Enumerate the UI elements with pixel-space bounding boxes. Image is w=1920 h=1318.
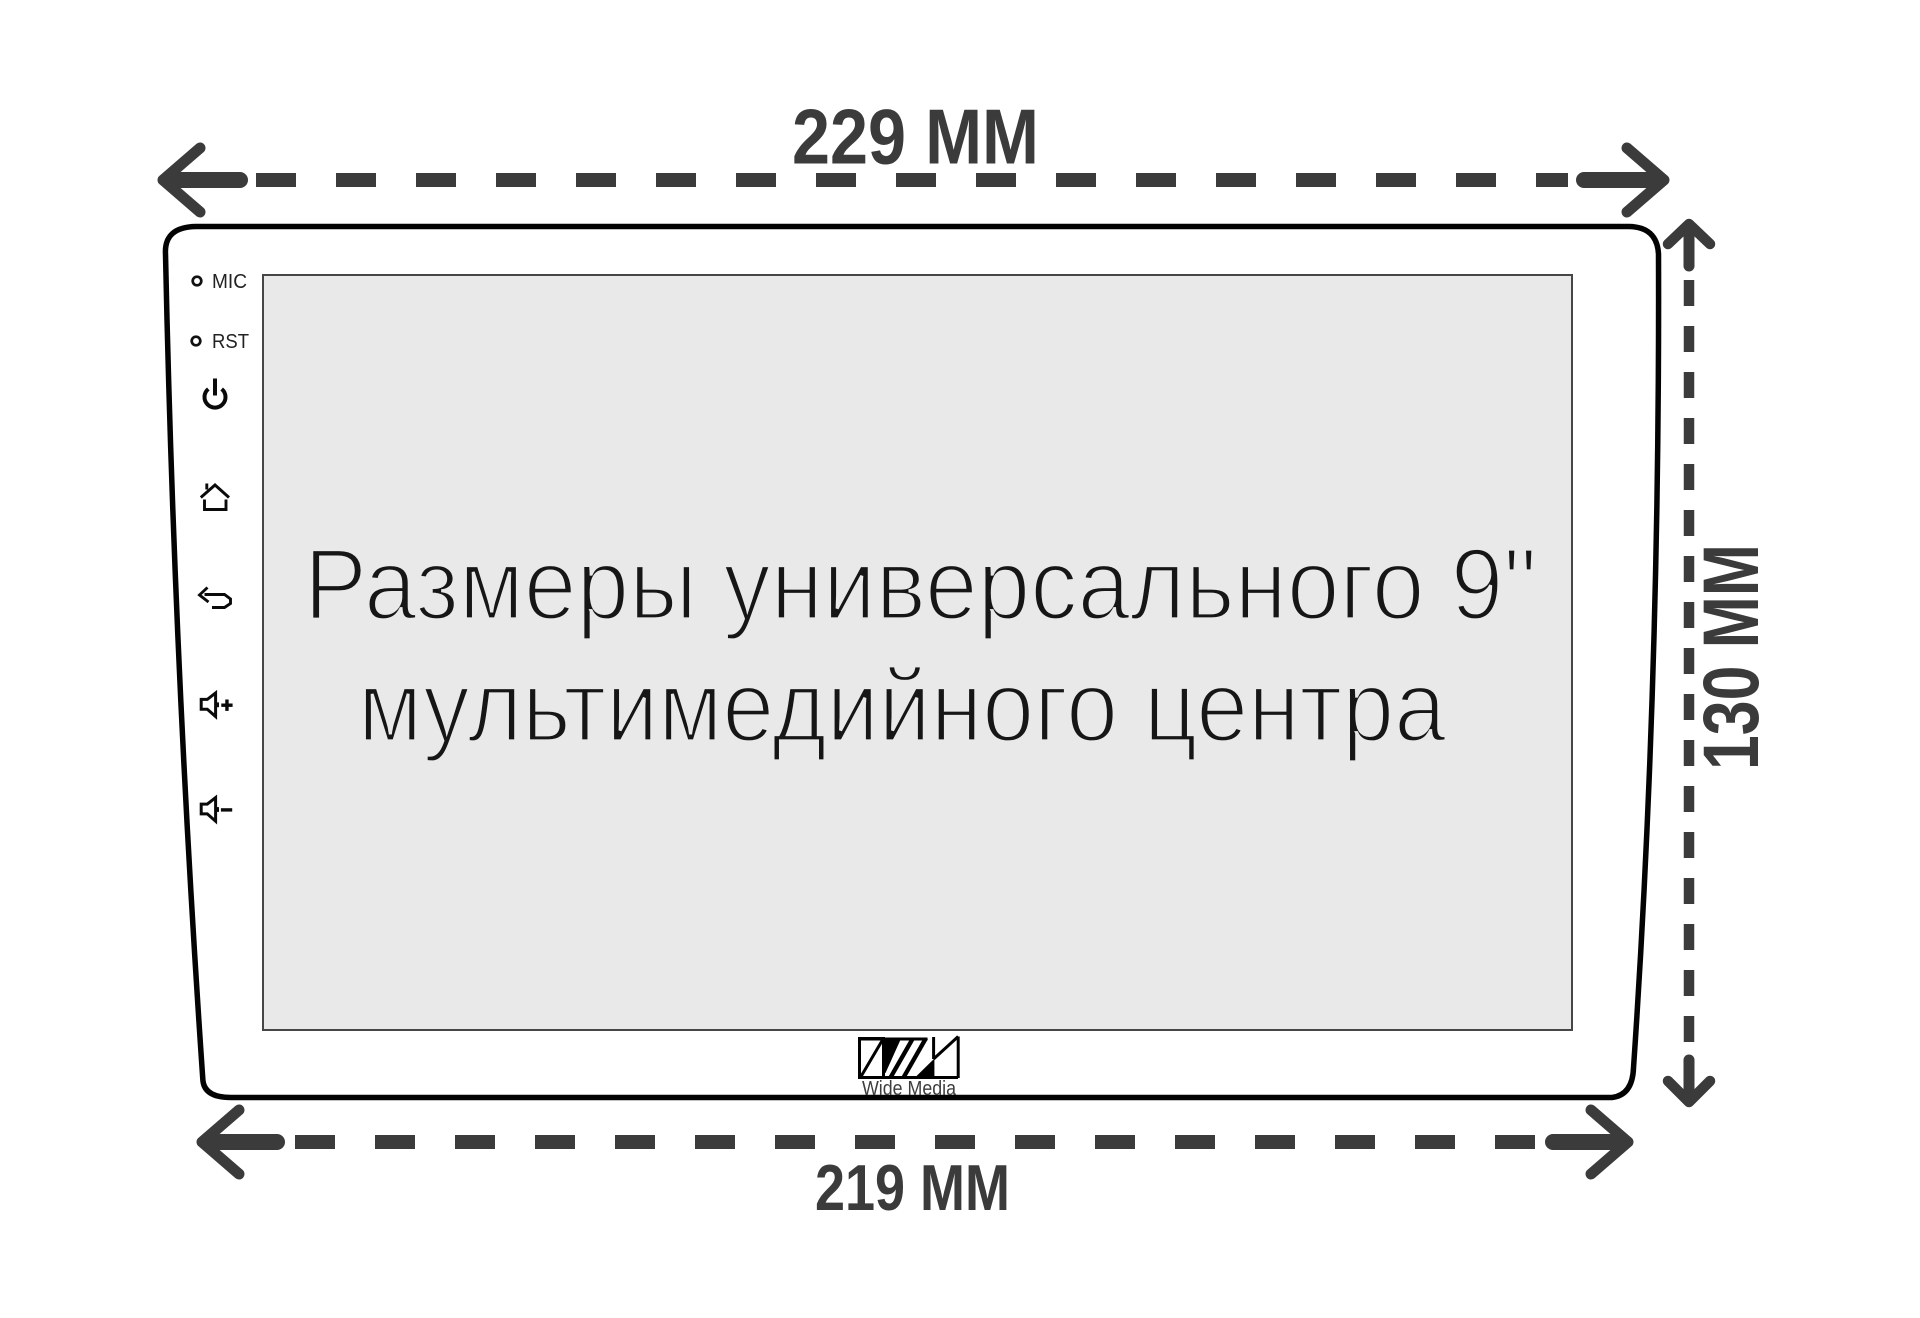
svg-text:мультимедийного центра: мультимедийного центра xyxy=(358,651,1447,763)
svg-text:Wide Media: Wide Media xyxy=(862,1078,957,1100)
svg-text:229 MM: 229 MM xyxy=(792,93,1039,181)
svg-text:219 MM: 219 MM xyxy=(815,1151,1010,1224)
svg-text:Размеры универсального 9": Размеры универсального 9" xyxy=(304,529,1537,641)
svg-text:130 MM: 130 MM xyxy=(1686,544,1775,770)
svg-text:RST: RST xyxy=(212,330,249,353)
svg-text:MIC: MIC xyxy=(212,270,247,293)
